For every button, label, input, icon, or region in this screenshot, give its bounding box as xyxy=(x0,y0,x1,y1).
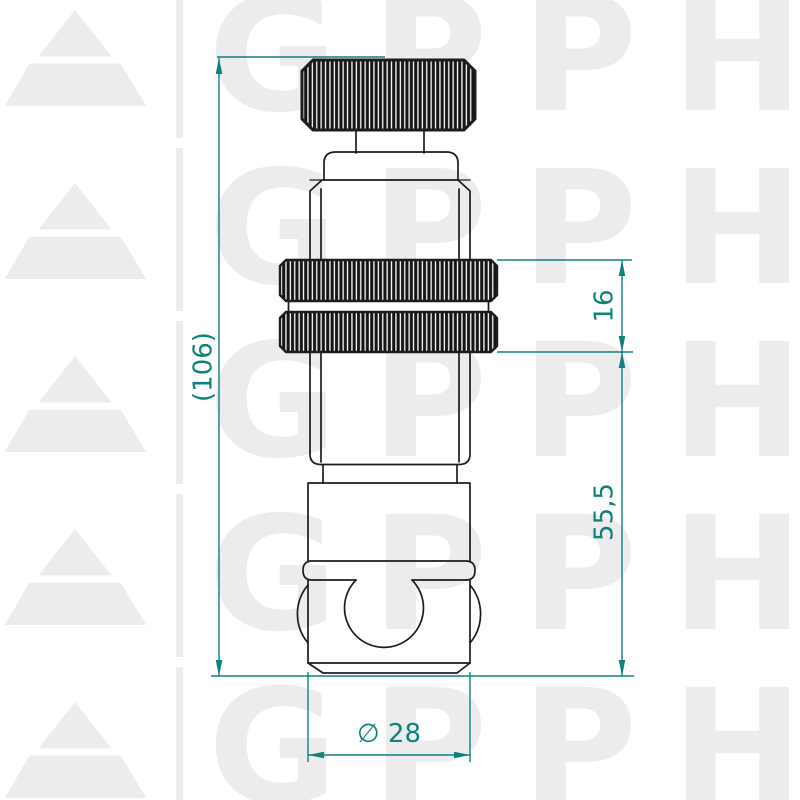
stem xyxy=(356,130,424,153)
dimension-label-overall: (106) xyxy=(189,332,219,402)
lower-body xyxy=(310,352,470,465)
dimension-label-diameter: ∅ 28 xyxy=(357,719,421,749)
ball-socket-circle xyxy=(345,580,424,647)
neck xyxy=(323,465,457,483)
dimension-overall-height: (106) xyxy=(189,58,223,676)
ring-gap xyxy=(289,301,489,312)
knurled-ring-lower xyxy=(280,312,497,352)
part-outline xyxy=(280,60,497,673)
dimension-diameter: ∅ 28 xyxy=(308,719,470,758)
dimensions: (106) 16 55,5 ∅ 28 xyxy=(189,57,635,762)
dimension-label-knurl: 16 xyxy=(590,289,620,322)
socket-block-upper xyxy=(308,483,470,562)
socket-block-lower xyxy=(308,580,470,663)
extension-lines xyxy=(211,57,634,762)
side-ears xyxy=(297,585,480,643)
bottom-chamfer xyxy=(308,663,470,673)
dimension-knurl-height: 16 xyxy=(590,260,626,352)
technical-drawing-page: GPPH GPPH GPPH GPPH xyxy=(0,0,800,800)
dimension-lower-height: 55,5 xyxy=(590,352,626,676)
upper-body xyxy=(310,180,470,259)
collar xyxy=(324,152,458,180)
dimension-label-lower: 55,5 xyxy=(590,483,620,541)
knurled-knob xyxy=(302,60,475,130)
drawing-svg: (106) 16 55,5 ∅ 28 xyxy=(0,0,800,800)
knurled-ring-upper xyxy=(280,260,497,301)
bead-ring xyxy=(303,561,475,580)
